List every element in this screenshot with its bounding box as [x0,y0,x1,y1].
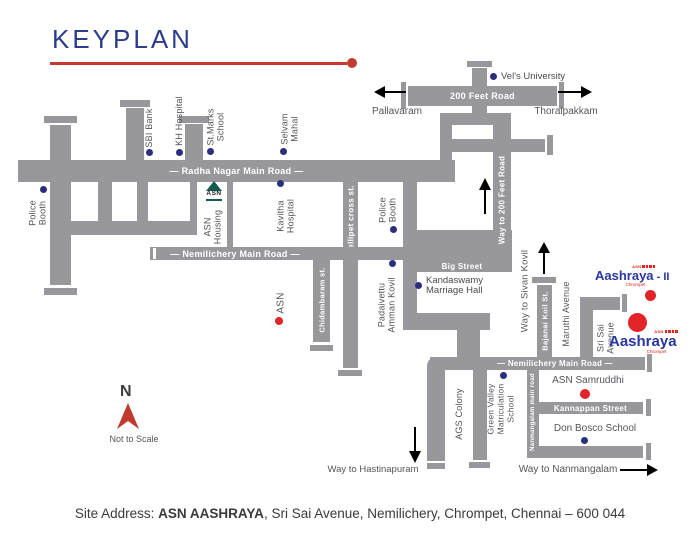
site-address-label: Site Address: [75,506,158,521]
site-address-rest: , Sri Sai Avenue, Nemilichery, Chrompet,… [264,506,625,521]
kandaswamy-marker [415,282,422,289]
aashraya-logo: Aashraya ASN Chrompet [609,333,677,354]
asn-housing-logo-rule [206,199,222,201]
aashraya-ii-logo: Aashraya - II ASN Chrompet [595,268,669,287]
street-band [70,221,197,235]
label-text: Don Bosco School [554,423,636,434]
label-kh-hospital: KH Hospital [174,96,184,146]
logo-asn-text: ASN [632,264,641,269]
label-don-bosco-school: Don Bosco School [550,423,640,434]
aashraya-logo-dots: ASN [632,264,655,269]
don-bosco-marker [581,437,588,444]
label-police-booth-1: Police Booth [28,200,49,226]
keyplan-map: KEYPLAN — Radha Nagar Main Road — Nellip… [0,0,700,554]
aashraya-marker [628,313,647,332]
label-kavitha-hospital: Kavitha Hospital [276,199,297,233]
label-text: Way to Hastinapuram [328,464,419,475]
thoraipakkam-arrow-icon [558,86,592,98]
green-valley-marker [500,372,507,379]
road-end-cap [44,288,77,295]
street-vertical [98,182,112,221]
road-label-kannappan: Kannappan Street [554,404,627,413]
label-text: Way to Nanmangalam [519,464,618,475]
label-asn-housing: ASN Housing [203,210,224,244]
way-to-200-feet-up-arrow-icon [479,178,491,214]
selvam-mahal-marker [280,148,287,155]
street-vertical [190,182,197,235]
title-underline [50,62,347,65]
north-label: N [120,383,132,401]
road-end-cap [120,100,150,107]
label-text: Pallavaram [372,106,422,117]
road-label-nanmangalam-main: Nanmangalam main road [530,373,536,451]
road-label-bajanai: Bajanai Koil St. [541,291,550,350]
vels-university-marker [490,73,497,80]
road-label-nellipet: Nellipet cross st. [347,185,356,254]
road-200-feet: 200 Feet Road [408,86,557,106]
st-marks-school-marker [207,148,214,155]
label-way-to-sivan-kovil: Way to Sivan Kovil [521,250,532,332]
north-arrow-icon [117,403,139,429]
label-sbi-bank: SBI Bank [144,108,154,147]
road-end-cap [44,116,77,123]
label-text: ASN Samruddhi [552,375,624,386]
label-police-booth-2: Police Booth [378,197,399,223]
label-kandaswamy-marriage-hall: Kandaswamy Marriage Hall [426,276,483,297]
road-big-street: Big Street [412,260,512,272]
label-asn-samruddhi: ASN Samruddhi [548,375,628,386]
road-stub-north-2 [185,124,203,162]
road-don-bosco-south [538,446,643,458]
road-end-cap [469,462,490,468]
kh-hospital-marker [176,149,183,156]
label-padaivettu-amman-kovil: Padaivettu Amman Kovil [377,277,398,332]
road-label-nemilichery-lower: — Nemilichery Main Road — [497,359,613,368]
police-booth-2-marker [390,226,397,233]
road-label-way-to-200-feet: Way to 200 Feet Road [498,156,507,244]
road-kannappan: Kannappan Street [538,402,643,414]
kavitha-hospital-marker [277,180,284,187]
road-end-cap [647,354,652,372]
road-label-wrap: — Nemilichery Main Road — [150,247,320,260]
asn-housing-logo-text: ASN [201,191,227,198]
page-title: KEYPLAN [52,24,193,55]
way-to-hastinapuram-down-arrow-icon [409,427,421,463]
scale-note: Not to Scale [98,434,170,444]
pallavaram-arrow-icon [374,86,406,98]
road-end-cap [646,443,651,460]
street-band [403,313,490,330]
label-green-valley-school: Green Valley Matriculation School [486,384,515,435]
street-aashraya-vertical [580,297,593,357]
road-label-radha-nagar: — Radha Nagar Main Road — [169,166,303,176]
site-address: Site Address: ASN AASHRAYA, Sri Sai Aven… [0,506,700,521]
title-underline-dot [347,58,357,68]
road-label-200-feet: 200 Feet Road [450,91,515,101]
logo-asn-text: ASN [654,329,663,334]
road-end-cap [532,277,556,283]
label-maruthi-avenue: Maruthi Avenue [561,281,571,346]
aashraya-logo-name: Aashraya ASN [609,333,677,350]
asn-housing-logo: ASN [201,181,227,201]
road-label-chidambaram: Chidambaram st. [318,267,327,332]
road-ags-west [427,357,445,461]
road-label-wrap: — Nemilichery Main Road — [480,357,630,370]
way-to-nanmangalam-right-arrow-icon [620,464,658,476]
asn-samruddhi-marker [580,389,590,399]
road-end-cap [622,294,627,312]
aashraya-ii-suffix: - II [654,271,670,283]
label-pallavaram: Pallavaram [362,106,432,117]
road-vels-stub [472,68,487,86]
way-to-sivan-kovil-up-arrow-icon [538,242,550,274]
road-label-nemilichery-upper: — Nemilichery Main Road — [170,249,300,259]
padaivettu-marker [389,260,396,267]
road-end-cap [338,370,362,376]
site-address-name: ASN AASHRAYA [158,506,264,521]
aashraya-ii-logo-name: Aashraya - II ASN [595,268,669,283]
road-ring-left [440,113,452,160]
label-ags-colony: AGS Colony [454,388,464,440]
street-vertical [227,182,233,247]
label-vels-university: Vel's University [501,71,565,82]
road-end-cap [467,61,492,67]
label-way-to-hastinapuram: Way to Hastinapuram [323,464,423,475]
street-vertical [137,182,148,221]
aashraya-ii-marker [645,290,656,301]
road-end-cap [547,135,553,155]
road-label-big-street: Big Street [442,262,483,271]
road-radha-nagar: — Radha Nagar Main Road — [18,160,455,182]
aashraya-logo-dots: ASN [654,329,677,334]
label-asn-site: ASN [275,292,287,313]
label-thoraipakkam: Thoraipakkam [526,106,606,117]
street-nellipet-south [343,260,358,368]
road-left-vertical [50,125,71,285]
road-end-cap [646,399,651,416]
sbi-bank-marker [146,149,153,156]
road-stub-north-1 [126,108,144,162]
label-st-marks-school: St.Marks School [206,108,227,145]
asn-site-marker [275,317,283,325]
logo-text: Aashraya [609,333,677,350]
label-text: Thoraipakkam [534,106,597,117]
road-end-cap [427,463,445,469]
police-booth-1-marker [40,186,47,193]
label-selvam-mahal: Selvam Mahal [280,113,301,144]
label-way-to-nanmangalam: Way to Nanmangalam [518,464,618,475]
logo-text: Aashraya [595,268,654,283]
road-end-cap [310,345,333,351]
